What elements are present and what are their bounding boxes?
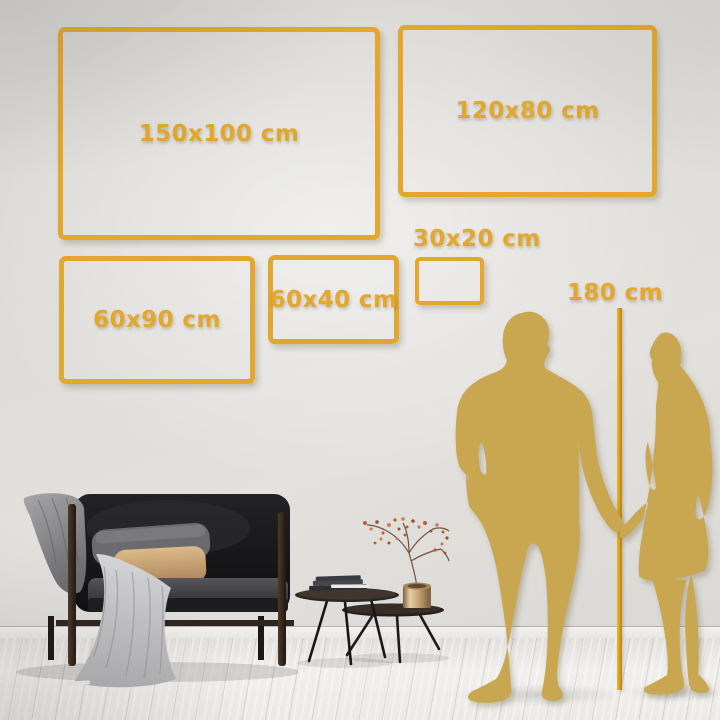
frame-30x20-label: 30x20 cm — [413, 226, 541, 252]
sofa-front-pole — [68, 504, 76, 666]
couple-silhouettes — [440, 300, 720, 710]
coffee-tables — [285, 515, 450, 670]
vase — [403, 583, 431, 609]
frame-60x40: 60x40 cm — [268, 255, 399, 344]
plant-branches — [367, 523, 449, 586]
woman-front-leg — [644, 578, 687, 694]
woman-back-leg — [685, 576, 709, 693]
woman-silhouette — [619, 333, 712, 581]
sofa-rear-leg — [48, 616, 54, 660]
frame-60x90-label: 60x90 cm — [93, 307, 221, 333]
paper-on-floor — [68, 680, 90, 686]
frame-120x80-label: 120x80 cm — [455, 98, 599, 124]
frame-120x80: 120x80 cm — [398, 25, 657, 197]
man-silhouette — [456, 312, 625, 703]
nesting-table-left — [295, 588, 399, 664]
frame-30x20 — [415, 257, 484, 305]
table-shadow — [345, 653, 449, 663]
books-stack — [309, 575, 370, 591]
frame-60x90: 60x90 cm — [59, 256, 255, 384]
sofa-stretcher — [56, 620, 294, 626]
size-guide-image: 150x100 cm 120x80 cm 60x90 cm 60x40 cm 3… — [0, 0, 720, 720]
frame-60x40-label: 60x40 cm — [270, 287, 398, 313]
blanket-over-arm — [24, 493, 86, 593]
frame-150x100-label: 150x100 cm — [139, 121, 299, 147]
frame-150x100: 150x100 cm — [58, 27, 380, 240]
sofa — [8, 486, 298, 692]
height-reference-label: 180 cm — [555, 280, 675, 306]
